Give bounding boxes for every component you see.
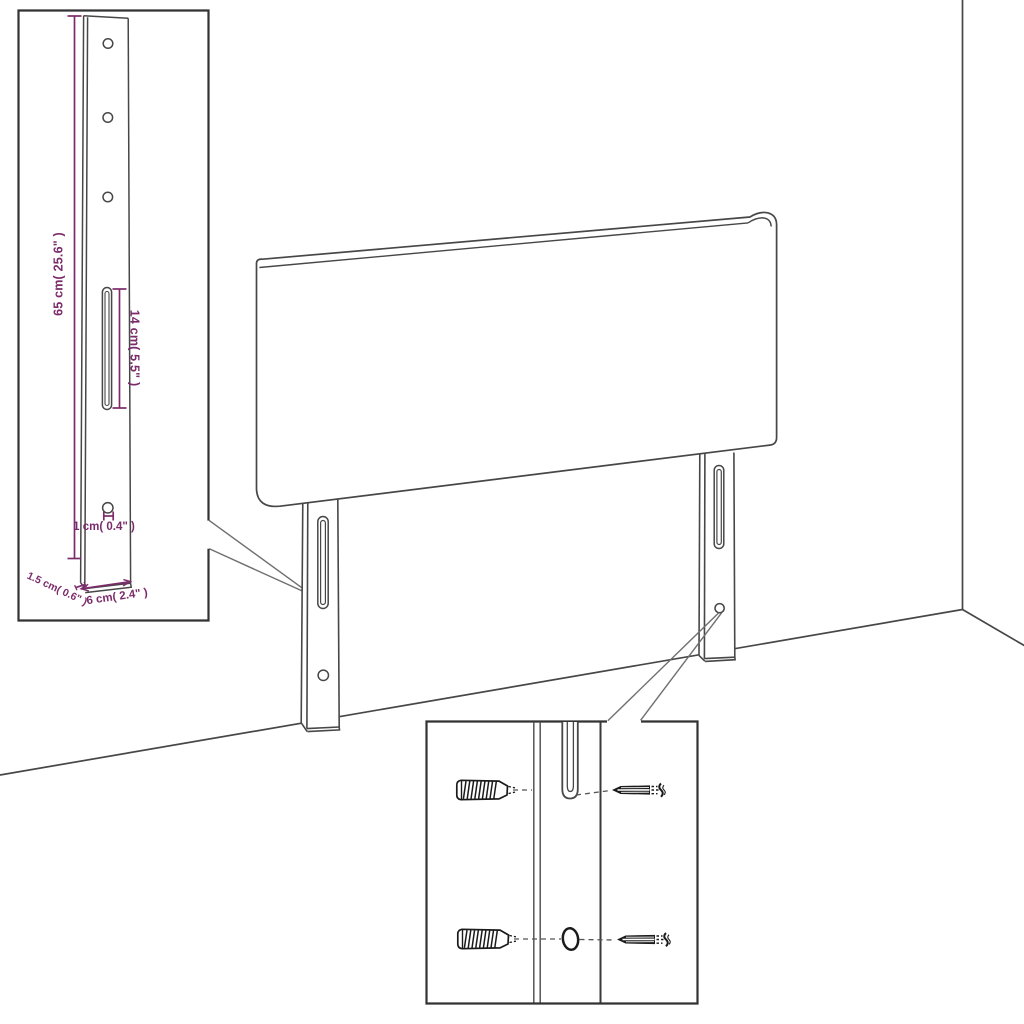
screw-top	[612, 784, 665, 797]
hardware-inset	[427, 722, 698, 1004]
wall-plug-top	[457, 780, 515, 799]
leg-right-hole	[715, 604, 724, 613]
callout-lines-left	[209, 521, 304, 592]
screw-bottom	[617, 933, 670, 946]
bracket-hole-3	[103, 192, 113, 202]
headboard-leg-left	[301, 498, 339, 732]
leg-right-slot	[714, 466, 724, 549]
bracket-hole-2	[103, 113, 113, 123]
panel-outline	[256, 212, 776, 506]
dim-hole-label: 1 cm( 0.4" )	[73, 521, 135, 533]
product-diagram: 65 cm( 25.6" ) 14 cm( 5.5" ) 1 cm( 0.4" …	[0, 0, 1024, 1024]
floor-line-right	[963, 610, 1024, 647]
leg-left-slot	[318, 517, 328, 609]
bracket-slot	[102, 288, 111, 410]
headboard-panel	[256, 212, 776, 506]
wall-plug-bottom	[458, 929, 516, 948]
diagram-canvas: 65 cm( 25.6" ) 14 cm( 5.5" ) 1 cm( 0.4" …	[0, 0, 1024, 1024]
bracket-hole-1	[103, 39, 113, 49]
headboard-leg-right	[699, 452, 735, 661]
strip-slot	[562, 722, 578, 799]
dim-slot-label: 14 cm( 5.5" )	[128, 310, 142, 387]
leg-left-hole	[318, 670, 328, 680]
dim-height-label: 65 cm( 25.6" )	[52, 232, 66, 316]
floor-line-left	[0, 610, 963, 776]
bracket-inset: 65 cm( 25.6" ) 14 cm( 5.5" ) 1 cm( 0.4" …	[19, 11, 209, 621]
bracket-drawing	[81, 16, 132, 593]
strip-hole	[561, 927, 579, 951]
bracket-hole-4	[103, 503, 113, 513]
